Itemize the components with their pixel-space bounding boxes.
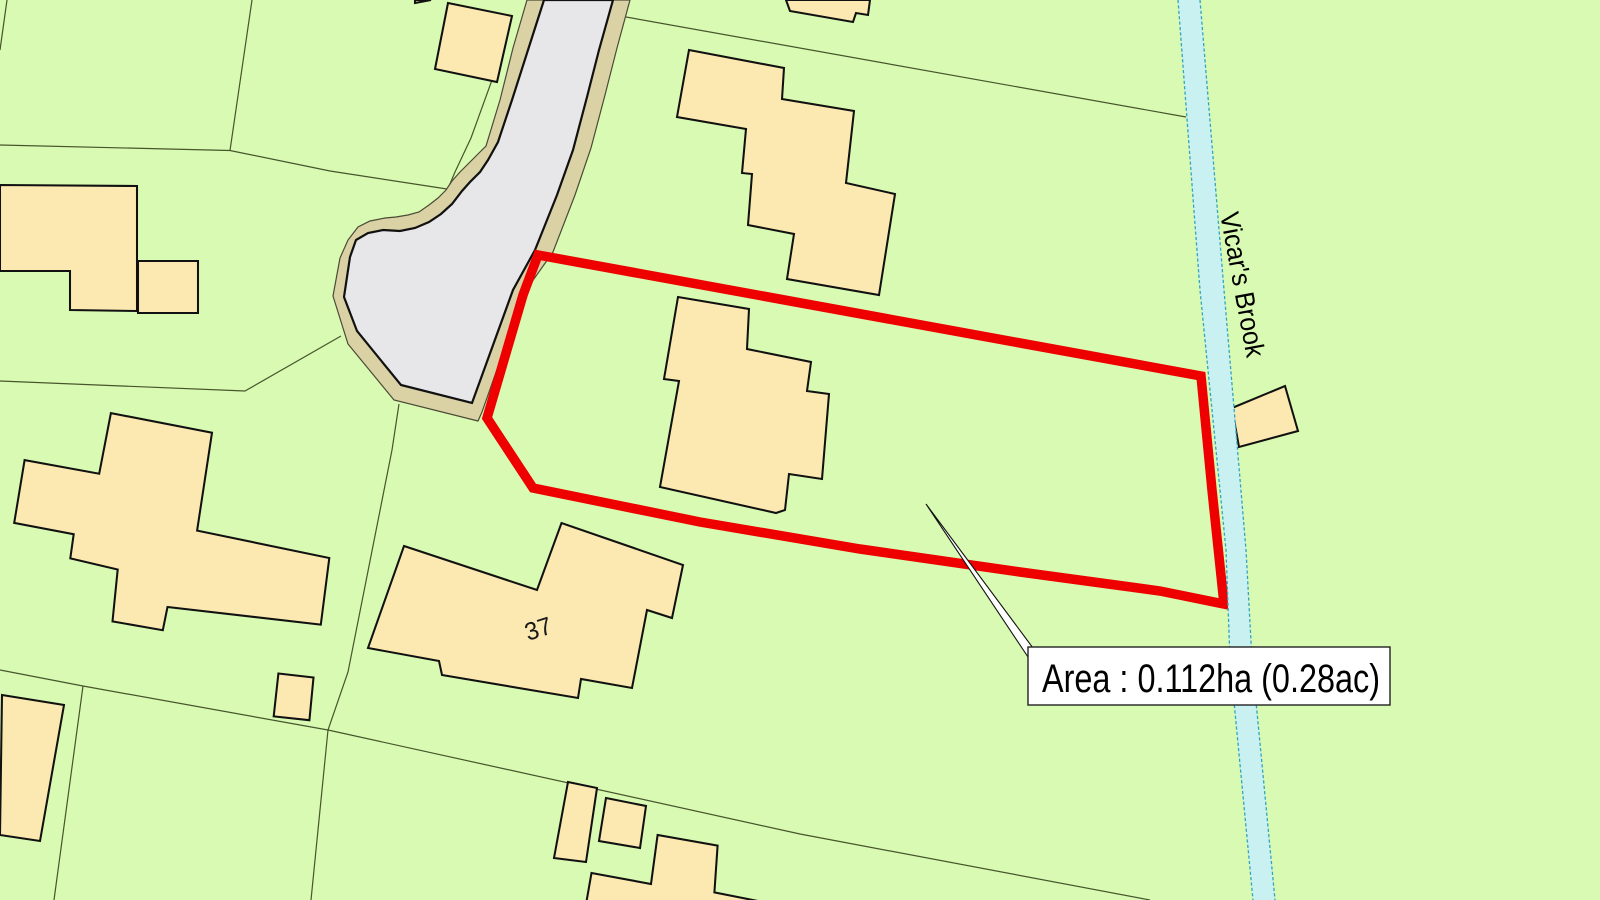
svg-text:Area : 0.112ha (0.28ac): Area : 0.112ha (0.28ac) [1042, 657, 1380, 701]
